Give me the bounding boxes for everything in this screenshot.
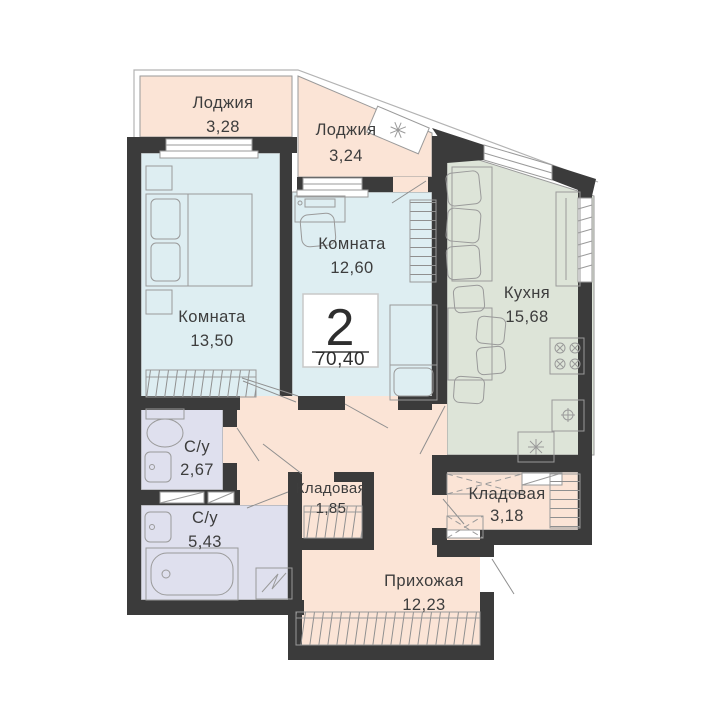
floor-plan-svg: 2 70,40 [0, 0, 726, 726]
wardrobe [296, 612, 480, 645]
room-area: 2,67 [180, 461, 214, 479]
room-label: Лоджия [193, 94, 254, 112]
room-area: 13,50 [190, 332, 233, 350]
room-label: Лоджия [316, 121, 377, 139]
wardrobe [550, 474, 580, 528]
room-area: 12,23 [402, 596, 445, 614]
wardrobe [410, 200, 436, 282]
badge-total-area: 70,40 [315, 349, 365, 370]
room-label: С/у [192, 509, 218, 527]
room-area: 3,28 [206, 118, 240, 136]
wardrobe [146, 370, 256, 397]
room-label: С/у [184, 438, 210, 456]
entrance-door-opening [480, 557, 494, 592]
vent-star-icon [528, 439, 544, 455]
room-label: Кладовая [296, 480, 366, 497]
window-sill [160, 151, 258, 158]
room-area: 15,68 [505, 308, 548, 326]
room-label: Прихожая [384, 572, 464, 590]
room-area: 1,85 [316, 500, 347, 517]
hallway-wardrobe [296, 612, 480, 645]
room-label: Комната [178, 308, 246, 326]
room-kitchen [447, 150, 594, 455]
floor-plan: 2 70,40 [0, 0, 726, 726]
apartment-badge: 2 70,40 [303, 294, 378, 370]
room-area: 3,18 [490, 507, 524, 525]
room-area: 5,43 [188, 533, 222, 551]
room-label: Кухня [504, 284, 550, 302]
room-area: 12,60 [330, 259, 373, 277]
room-label: Кладовая [468, 485, 545, 503]
room-area: 3,24 [329, 147, 363, 165]
room-label: Комната [318, 235, 386, 253]
